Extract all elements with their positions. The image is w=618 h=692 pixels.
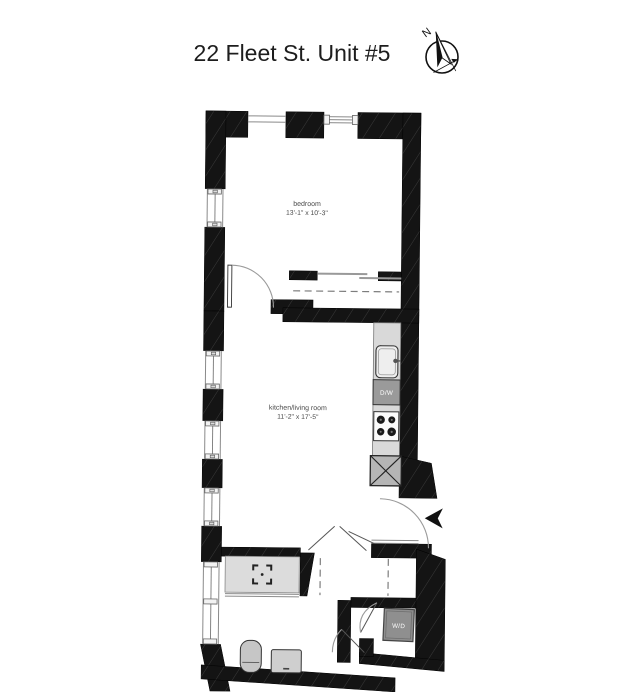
- refrigerator: [370, 456, 401, 486]
- closet-rod: [293, 291, 399, 292]
- window-top-1: [248, 116, 286, 122]
- closet-door-leaf: [308, 526, 334, 550]
- washer-dryer: W/D: [383, 608, 414, 641]
- kitchen-living-label: kitchen/living room: [269, 405, 327, 413]
- bedroom-dimensions: 13'-1" x 10'-3": [286, 210, 328, 217]
- page-title: 22 Fleet St. Unit #5: [194, 40, 391, 66]
- bedroom-label: bedroom: [293, 201, 321, 208]
- floor-plan: D/W: [199, 111, 450, 692]
- built-in-counter: [225, 556, 299, 597]
- bedroom-room: bedroom 13'-1" x 10'-3": [286, 201, 329, 217]
- window-top-2: [324, 115, 358, 124]
- washer-dryer-label: W/D: [392, 623, 406, 631]
- window-living-2: [202, 421, 223, 459]
- window-living-3: [201, 488, 222, 526]
- stove: [374, 412, 399, 441]
- hall-closets: [308, 526, 389, 596]
- window-bathroom-left: [200, 562, 222, 644]
- floor-plan-page: 22 Fleet St. Unit #5 N: [0, 0, 618, 692]
- kitchen-sink: [376, 346, 401, 378]
- entry-arrow-icon: [425, 508, 443, 528]
- compass-north-label: N: [420, 26, 434, 40]
- window-living-1: [203, 351, 224, 389]
- kitchen-living-dimensions: 11'-2" x 17'-5": [277, 414, 319, 421]
- north-compass-icon: N: [420, 26, 460, 77]
- dishwasher: D/W: [373, 380, 400, 405]
- kitchen-appliance-strip: D/W: [370, 323, 403, 486]
- bedroom-door: [227, 265, 273, 307]
- unit-entry: [371, 499, 443, 549]
- kitchen-living-room: kitchen/living room 11'-2" x 17'-5": [269, 405, 327, 422]
- toilet: [240, 640, 261, 672]
- window-bedroom-left: [204, 189, 225, 227]
- floor-plan-svg: 22 Fleet St. Unit #5 N: [0, 0, 618, 692]
- sliding-door-leaf: [317, 274, 367, 275]
- exterior-walls: [200, 111, 450, 692]
- bathroom-sink: [271, 650, 301, 673]
- dishwasher-label: D/W: [380, 390, 393, 397]
